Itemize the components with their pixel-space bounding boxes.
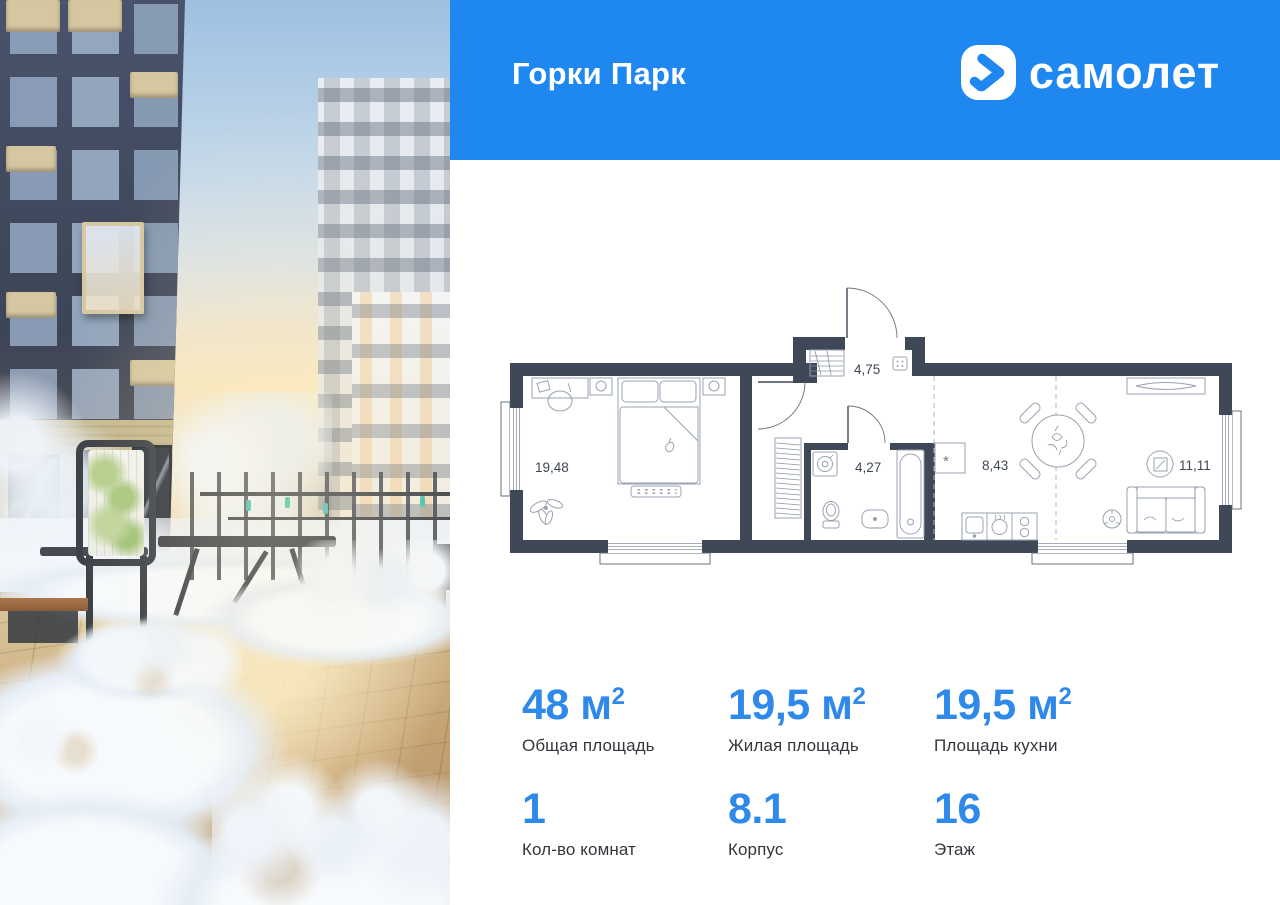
rig-clip [285,497,290,508]
stat-building: 8.1 Корпус [728,788,938,860]
balcony-panel [6,0,60,32]
room-area-label: 4,75 [854,362,880,377]
snowy-bush [0,700,113,785]
rig-clip [246,500,251,511]
stat-label: Площадь кухни [934,736,1144,756]
stat-value: 19,5 м2 [728,684,938,727]
balcony-panel [6,292,56,318]
room-area-label: 8,43 [982,458,1008,473]
project-title: Горки Парк [512,56,686,92]
stat-living-area: 19,5 м2 Жилая площадь [728,684,938,756]
brand-wordmark: самолет [1029,50,1220,95]
floor-plan: 19,48 4,75 4,27 8,43 11,11 * [500,280,1260,580]
stat-label: Общая площадь [522,736,732,756]
plant [529,498,564,526]
stat-floor: 16 Этаж [934,788,1144,860]
stat-kitchen-area: 19,5 м2 Площадь кухни [934,684,1144,756]
stat-label: Кол-во комнат [522,840,732,860]
stat-rooms-count: 1 Кол-во комнат [522,788,732,860]
signboard-map [88,450,144,556]
glazed-balcony [82,222,144,314]
stat-value: 8.1 [728,788,938,831]
stat-value: 19,5 м2 [934,684,1144,727]
balcony-panel [6,146,56,172]
rig-bar [200,492,450,496]
wardrobe-niche-door [758,382,805,429]
dining-table [1018,401,1097,480]
stat-value: 16 [934,788,1144,831]
stat-value: 48 м2 [522,684,732,727]
balcony-panel [130,360,178,386]
floor-plan-svg: 19,48 4,75 4,27 8,43 11,11 * [500,280,1260,580]
bedroom-furniture [529,378,725,526]
samolet-arrow-icon [961,45,1016,100]
entrance-door [847,288,897,338]
kitchen-fixtures [935,401,1098,540]
bathroom-door [848,406,885,443]
stat-value: 1 [522,788,732,831]
stat-label: Жилая площадь [728,736,938,756]
snowy-bush [212,742,450,905]
brand-logo: самолет [961,45,1220,100]
windows [501,402,1241,564]
rig-bar [228,517,450,520]
stat-total-area: 48 м2 Общая площадь [522,684,732,756]
header: Горки Парк самолет [450,0,1280,160]
snowy-bush [295,540,450,618]
listing-card: Горки Парк самолет [0,0,1280,905]
kitchen-marker: * [943,453,949,470]
room-area-label: 11,11 [1179,458,1211,473]
rig-clip [420,496,425,507]
room-area-label: 19,48 [535,460,569,475]
stat-label: Корпус [728,840,938,860]
room-area-label: 4,27 [855,460,881,475]
balcony-panel [68,0,122,32]
balcony-panel [130,72,178,98]
snowy-bush [76,610,244,702]
courtyard-photo [0,0,450,905]
wardrobe-niche [775,438,801,518]
stat-label: Этаж [934,840,1144,860]
wood-bench [0,598,88,611]
rig-clip [323,503,328,514]
living-room-furniture [1103,378,1205,533]
